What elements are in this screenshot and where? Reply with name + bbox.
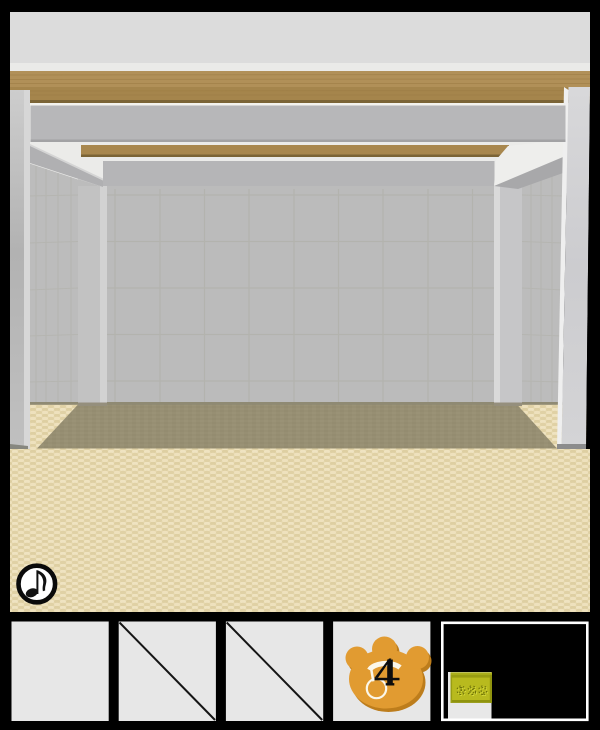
svg-text:esc: esc	[457, 682, 490, 699]
